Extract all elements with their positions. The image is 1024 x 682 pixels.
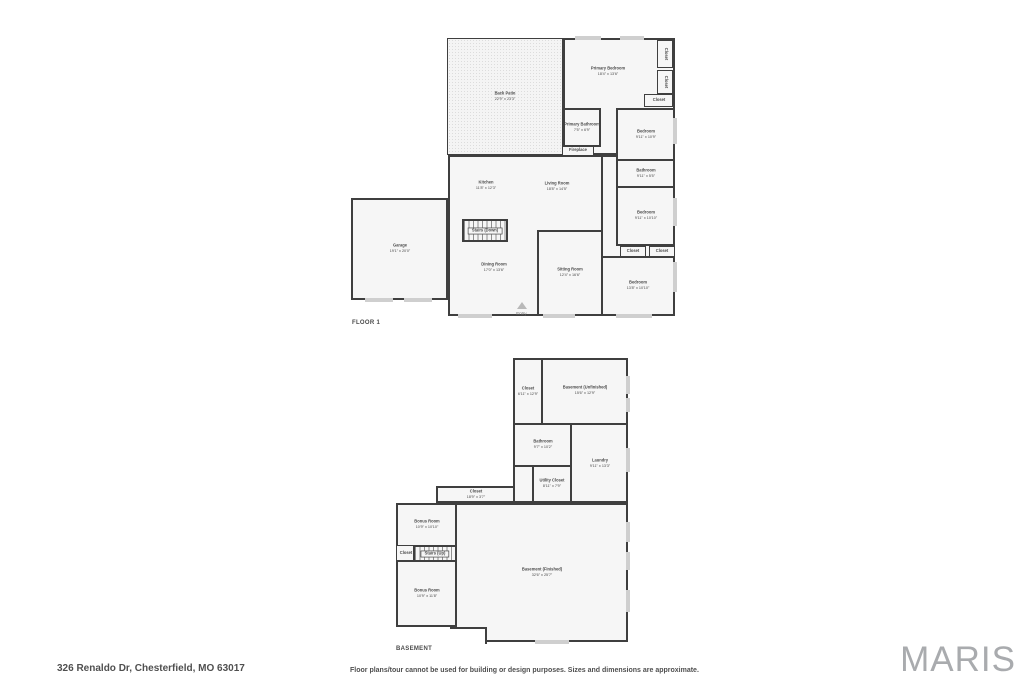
floor1-title: FLOOR 1 [352, 320, 380, 326]
room-label: Back Patio [495, 91, 516, 96]
window [575, 36, 601, 40]
footprint-step [450, 627, 487, 644]
floor-plan-page: Back Patio 22'9" x 23'3" Garage 19'1" x … [0, 0, 1024, 682]
basement-title: BASEMENT [396, 646, 432, 652]
window [626, 398, 630, 412]
window [626, 376, 630, 394]
room-dims: 22'9" x 23'3" [495, 97, 516, 102]
window [458, 314, 492, 318]
room-living-room-label: Living Room 18'8" x 14'5" [545, 182, 570, 192]
room-fireplace: Fireplace [562, 146, 594, 156]
room-closet-tr2: Closet [657, 70, 673, 94]
room-basement-bathroom: Bathroom 9'7" x 10'2" [513, 423, 572, 467]
window [673, 262, 677, 292]
room-closet-top: Closet 6'11" x 12'9" [513, 358, 543, 425]
room-bonus-room-1: Bonus Room 10'9" x 10'10" [396, 503, 457, 547]
room-laundry-label: Laundry 9'11" x 13'3" [590, 459, 610, 469]
window [673, 118, 677, 144]
room-bedroom-top-right: Bedroom 9'11" x 10'9" [616, 108, 675, 161]
room-primary-bathroom: Primary Bathroom 7'5" x 6'9" [563, 108, 601, 147]
room-back-patio: Back Patio 22'9" x 23'3" [447, 38, 563, 155]
window [620, 36, 644, 40]
window [616, 314, 652, 318]
room-bathroom-right: Bathroom 9'11" x 5'5" [616, 159, 675, 188]
entry-arrow-icon [517, 302, 527, 309]
room-basement-unfinished-label: Basement (Unfinished) 15'6" x 12'9" [563, 386, 607, 396]
window [535, 640, 569, 644]
stairs-up-label: Stairs (Up) [421, 550, 450, 557]
window [626, 522, 630, 542]
room-dining-room-label: Dining Room 17'0" x 13'6" [481, 263, 506, 273]
maris-logo: MARIS [900, 640, 1016, 680]
window [626, 590, 630, 612]
room-bedroom-right: Bedroom 9'11" x 10'10" [616, 186, 675, 246]
room-bonus-room-2: Bonus Room 10'9" x 11'8" [396, 560, 457, 627]
room-bedroom-bottom-right: Bedroom 13'8" x 10'10" [601, 256, 675, 316]
room-sitting-room: Sitting Room 12'4" x 16'6" [537, 230, 603, 316]
room-utility-closet: Utility Closet 8'11" x 7'9" [532, 465, 572, 503]
stairs-down-label: Stairs (Down) [468, 227, 502, 234]
room-closet-long: Closet 18'9" x 3'7" [436, 486, 515, 503]
property-address: 326 Renaldo Dr, Chesterfield, MO 63017 [57, 663, 245, 674]
window [543, 314, 575, 318]
window [404, 298, 432, 302]
room-dims: 19'1" x 20'0" [389, 249, 410, 254]
stairs-down: Stairs (Down) [462, 219, 508, 242]
window [626, 552, 630, 570]
room-closet-tr1: Closet [657, 40, 673, 68]
hallway-wall [601, 155, 603, 241]
entry-label: Entry [516, 312, 526, 317]
window [673, 198, 677, 226]
window [365, 298, 393, 302]
room-basement-finished: Basement (Finished) 32'6" x 25'7" [455, 503, 628, 642]
room-primary-bedroom-label: Primary Bedroom 18'4" x 13'6" [591, 67, 625, 77]
room-kitchen-label: Kitchen 11'8" x 12'3" [476, 181, 496, 191]
window [626, 448, 630, 472]
room-closet-tr3: Closet [644, 94, 673, 107]
disclaimer-text: Floor plans/tour cannot be used for buil… [350, 667, 699, 674]
room-garage: Garage 19'1" x 20'0" [351, 198, 448, 300]
